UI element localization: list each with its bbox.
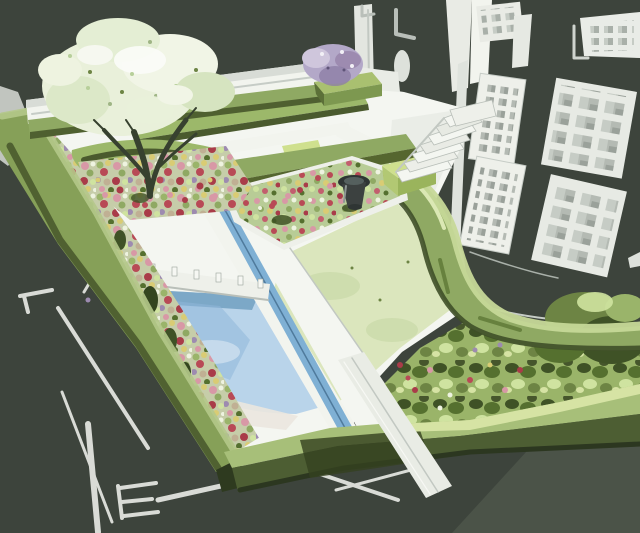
garden-illustration bbox=[0, 0, 640, 533]
sash-window-upper bbox=[541, 78, 637, 179]
illustration-canvas bbox=[0, 0, 640, 533]
window-top-right bbox=[574, 12, 640, 58]
